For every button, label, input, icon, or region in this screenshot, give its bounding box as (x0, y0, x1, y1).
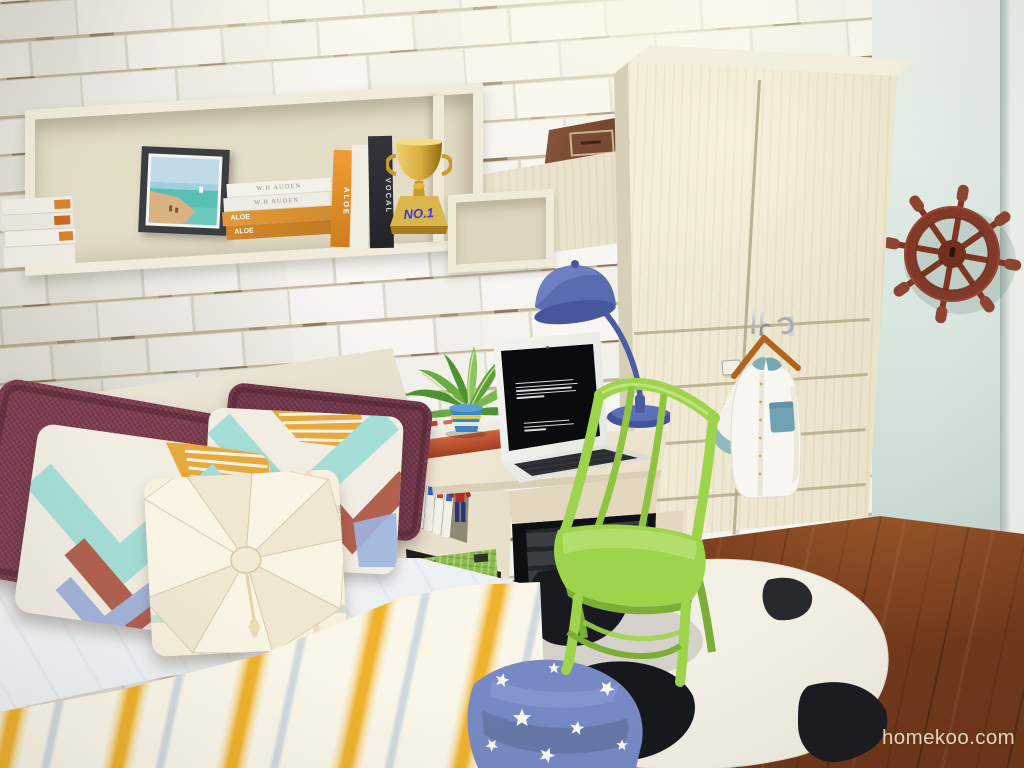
pillow-bowtie (143, 469, 347, 657)
photo-boat (199, 186, 203, 192)
trophy-label: NO.1 (403, 205, 434, 222)
laptop-camera (546, 346, 549, 349)
watermark: homekoo.com (882, 726, 1015, 750)
green-chair (538, 370, 743, 705)
book-label (59, 231, 73, 241)
photo-sand (149, 157, 220, 226)
book-label (54, 199, 70, 209)
photo-figure (175, 208, 178, 213)
photo-mat (145, 153, 222, 228)
box-label-holder (569, 129, 615, 156)
small-book (4, 244, 76, 268)
photo-frame (138, 146, 230, 236)
bedroom-scene: W.H AUDEN W.H AUDEN ALOE ALOE ALOE VOCAL… (0, 0, 1024, 768)
trophy: NO.1 (386, 134, 452, 248)
ship-wheel-decor (880, 178, 1024, 328)
book-aloe: ALOE (330, 150, 352, 248)
box-label-slot (581, 140, 601, 144)
bowtie-pattern (143, 469, 347, 657)
stacked-books: W.H AUDEN W.H AUDEN ALOE ALOE (220, 178, 335, 241)
book-label (54, 215, 70, 225)
photo-figure (170, 205, 173, 211)
photo-seaside (149, 157, 220, 226)
